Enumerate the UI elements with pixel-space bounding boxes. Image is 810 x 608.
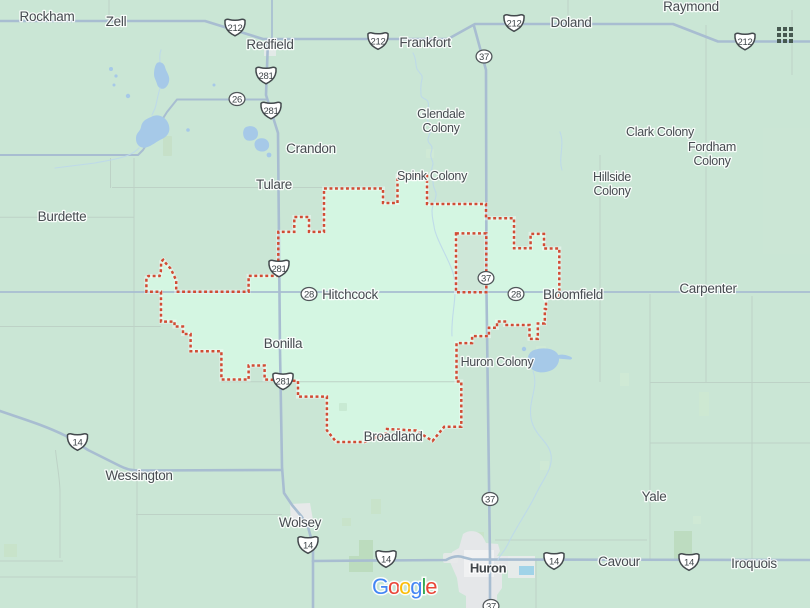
svg-text:281: 281 bbox=[264, 106, 279, 117]
svg-text:28: 28 bbox=[304, 289, 314, 300]
svg-text:Raymond: Raymond bbox=[663, 0, 719, 14]
svg-text:212: 212 bbox=[228, 23, 243, 34]
svg-text:Tulare: Tulare bbox=[256, 177, 292, 192]
svg-text:37: 37 bbox=[485, 494, 495, 505]
svg-text:Broadland: Broadland bbox=[364, 429, 423, 444]
svg-text:Zell: Zell bbox=[106, 14, 127, 29]
svg-text:Huron Colony: Huron Colony bbox=[461, 355, 535, 369]
svg-text:Frankfort: Frankfort bbox=[399, 35, 451, 50]
svg-text:Huron: Huron bbox=[470, 561, 507, 576]
svg-text:14: 14 bbox=[549, 556, 559, 567]
svg-text:Glendale: Glendale bbox=[417, 107, 465, 121]
svg-text:Bonilla: Bonilla bbox=[264, 336, 303, 351]
svg-text:212: 212 bbox=[371, 36, 386, 47]
svg-text:Colony: Colony bbox=[422, 121, 460, 135]
svg-text:Carpenter: Carpenter bbox=[679, 281, 737, 296]
svg-text:14: 14 bbox=[684, 557, 694, 568]
svg-text:Wolsey: Wolsey bbox=[279, 515, 322, 530]
svg-text:Hitchcock: Hitchcock bbox=[322, 287, 378, 302]
svg-text:212: 212 bbox=[507, 18, 522, 29]
svg-text:Burdette: Burdette bbox=[38, 209, 87, 224]
svg-text:Fordham: Fordham bbox=[688, 140, 736, 154]
svg-text:Doland: Doland bbox=[551, 15, 592, 30]
svg-text:Iroquois: Iroquois bbox=[731, 556, 777, 571]
svg-text:281: 281 bbox=[272, 264, 287, 275]
svg-text:Clark Colony: Clark Colony bbox=[626, 125, 695, 139]
svg-text:Hillside: Hillside bbox=[593, 170, 631, 184]
svg-text:Colony: Colony bbox=[693, 154, 731, 168]
svg-text:281: 281 bbox=[259, 71, 274, 82]
svg-text:Spink Colony: Spink Colony bbox=[397, 169, 468, 183]
svg-text:37: 37 bbox=[486, 601, 496, 608]
svg-text:Cavour: Cavour bbox=[598, 554, 641, 569]
svg-text:281: 281 bbox=[276, 377, 291, 388]
svg-text:Bloomfield: Bloomfield bbox=[543, 287, 603, 302]
svg-text:Wessington: Wessington bbox=[105, 468, 172, 483]
svg-text:26: 26 bbox=[232, 94, 242, 105]
svg-text:Colony: Colony bbox=[593, 184, 631, 198]
svg-text:14: 14 bbox=[303, 540, 313, 551]
svg-text:37: 37 bbox=[479, 52, 489, 63]
svg-text:Google: Google bbox=[372, 574, 437, 599]
svg-text:37: 37 bbox=[481, 273, 491, 284]
svg-text:14: 14 bbox=[381, 554, 391, 565]
svg-text:212: 212 bbox=[738, 37, 753, 48]
svg-text:14: 14 bbox=[73, 437, 83, 448]
svg-text:Redfield: Redfield bbox=[246, 37, 293, 52]
svg-text:Yale: Yale bbox=[642, 489, 667, 504]
svg-text:Crandon: Crandon bbox=[286, 141, 336, 156]
svg-text:Rockham: Rockham bbox=[20, 9, 75, 24]
svg-text:28: 28 bbox=[511, 289, 521, 300]
